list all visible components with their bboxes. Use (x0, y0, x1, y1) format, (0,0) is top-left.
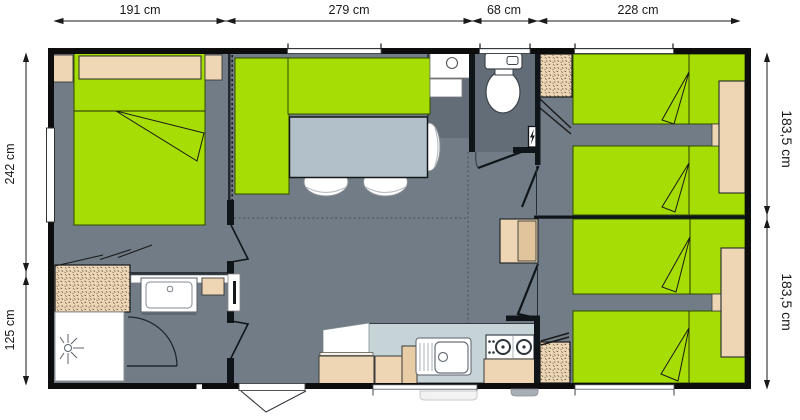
svg-text:279 cm: 279 cm (329, 3, 370, 17)
svg-text:68 cm: 68 cm (487, 3, 521, 17)
svg-text:191 cm: 191 cm (120, 3, 161, 17)
svg-text:183,5 cm: 183,5 cm (779, 110, 795, 168)
svg-text:183,5 cm: 183,5 cm (779, 273, 795, 331)
svg-text:125 cm: 125 cm (3, 310, 17, 351)
svg-text:228 cm: 228 cm (618, 3, 659, 17)
svg-text:242 cm: 242 cm (3, 144, 17, 185)
